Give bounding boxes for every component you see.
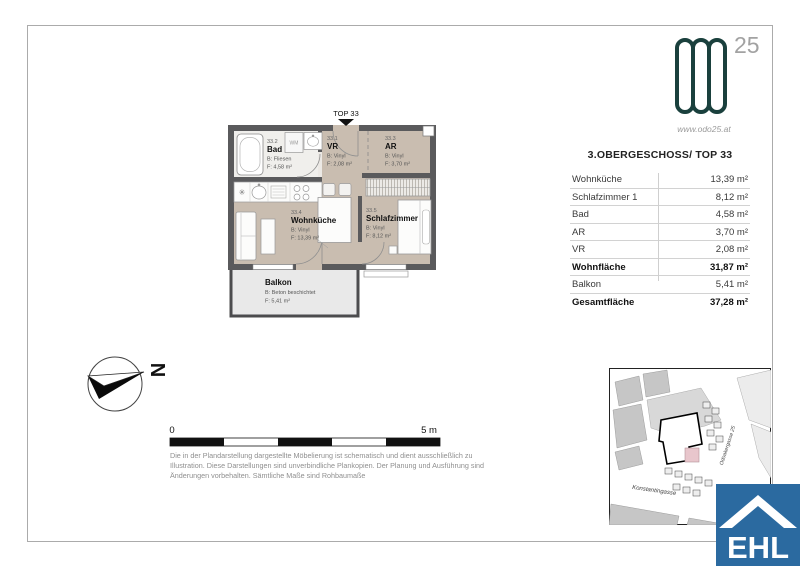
north-compass-icon: N bbox=[80, 350, 180, 420]
website-url: www.odo25.at bbox=[669, 124, 739, 134]
wall-bad-bottom bbox=[228, 177, 322, 182]
window-livingroom bbox=[253, 265, 293, 270]
window-bedroom bbox=[366, 265, 406, 270]
svg-text:F: 8,12 m²: F: 8,12 m² bbox=[366, 234, 391, 240]
bed-icon bbox=[398, 200, 431, 254]
ehl-logo-graphic: EHL bbox=[716, 484, 800, 566]
svg-text:B: Vinyl: B: Vinyl bbox=[327, 154, 346, 160]
washing-machine-icon: WM bbox=[285, 133, 303, 153]
wardrobe-icon bbox=[366, 179, 430, 196]
coffee-table-icon bbox=[261, 219, 275, 254]
svg-text:Balkon: Balkon bbox=[265, 278, 292, 287]
disclaimer-text: Die in der Plandarstellung dargestellte … bbox=[170, 451, 488, 481]
table-row: Schlafzimmer 18,12 m² bbox=[570, 189, 750, 207]
svg-text:B: Fliesen: B: Fliesen bbox=[267, 157, 291, 163]
scale-start: 0 bbox=[169, 425, 174, 436]
table-divider bbox=[658, 173, 659, 281]
odo25-bars-icon bbox=[675, 38, 723, 114]
floorplan-drawing: ✳ WM bbox=[195, 100, 465, 325]
wm-label: WM bbox=[290, 141, 299, 147]
roof-icon bbox=[719, 495, 797, 528]
odo25-number: 25 bbox=[734, 32, 760, 59]
svg-text:Wohnküche: Wohnküche bbox=[291, 216, 337, 225]
wall-bedroom-left bbox=[358, 196, 362, 242]
table-row: VR2,08 m² bbox=[570, 241, 750, 259]
window-sill bbox=[364, 271, 408, 277]
table-row: Wohnküche13,39 m² bbox=[570, 171, 750, 189]
svg-text:AR: AR bbox=[385, 142, 397, 151]
svg-text:F: 3,70 m²: F: 3,70 m² bbox=[385, 162, 410, 168]
svg-text:F: 2,08 m²: F: 2,08 m² bbox=[327, 162, 352, 168]
sofa-icon bbox=[236, 212, 256, 260]
entrance-label: TOP 33 bbox=[333, 109, 359, 118]
scale-end: 5 m bbox=[421, 425, 437, 436]
shaft bbox=[423, 126, 434, 136]
table-row: Balkon5,41 m² bbox=[570, 276, 750, 294]
washbasin-icon bbox=[304, 133, 322, 150]
table-row: AR3,70 m² bbox=[570, 224, 750, 242]
table-row-total-living: Wohnfläche31,87 m² bbox=[570, 259, 750, 277]
svg-text:B: Beton beschichtet: B: Beton beschichtet bbox=[265, 290, 316, 296]
table-row-total: Gesamtfläche37,28 m² bbox=[570, 294, 750, 311]
sink-icon bbox=[252, 186, 266, 199]
odo25-logo: 25 www.odo25.at bbox=[675, 38, 765, 138]
svg-text:Bad: Bad bbox=[267, 145, 282, 154]
svg-text:VR: VR bbox=[327, 142, 338, 151]
north-letter: N bbox=[146, 363, 168, 377]
table-row: Bad4,58 m² bbox=[570, 206, 750, 224]
burner-icon: ✳ bbox=[239, 188, 246, 197]
bathtub-icon bbox=[237, 134, 263, 175]
balcony-door-opening bbox=[296, 264, 322, 270]
wall-ar-bottom bbox=[362, 173, 430, 178]
area-table-title: 3.OBERGESCHOSS/ TOP 33 bbox=[570, 149, 750, 161]
scale-bar: 0 5 m bbox=[160, 420, 460, 455]
svg-text:F: 5,41 m²: F: 5,41 m² bbox=[265, 299, 290, 305]
svg-text:F: 4,58 m²: F: 4,58 m² bbox=[267, 165, 292, 171]
dining-set-icon bbox=[318, 184, 351, 243]
plan-page: ✳ WM bbox=[0, 0, 800, 566]
svg-text:B: Vinyl: B: Vinyl bbox=[385, 154, 404, 160]
area-table: 3.OBERGESCHOSS/ TOP 33 Wohnküche13,39 m²… bbox=[570, 149, 750, 310]
map-highlighted-unit bbox=[685, 448, 699, 462]
svg-text:B: Vinyl: B: Vinyl bbox=[291, 228, 310, 234]
svg-text:F: 13,39 m²: F: 13,39 m² bbox=[291, 236, 319, 242]
kitchen-counter: ✳ bbox=[234, 182, 322, 202]
svg-text:B: Vinyl: B: Vinyl bbox=[366, 226, 385, 232]
nightstand-icon bbox=[389, 246, 397, 254]
ehl-logo: EHL bbox=[716, 484, 800, 566]
entrance-arrow-icon bbox=[338, 119, 354, 126]
ehl-logo-text: EHL bbox=[727, 530, 789, 565]
svg-text:Schlafzimmer: Schlafzimmer bbox=[366, 214, 418, 223]
